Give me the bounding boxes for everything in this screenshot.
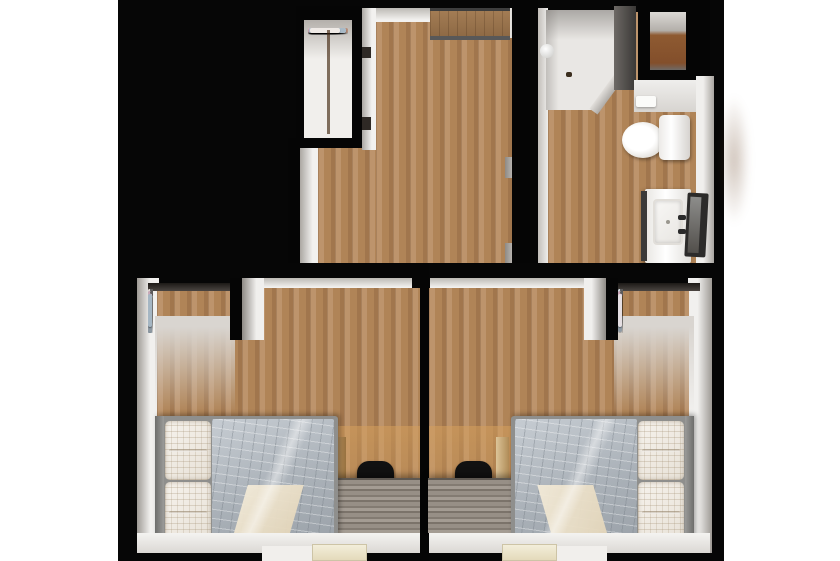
bedroom-right-hanging-clothes xyxy=(618,289,700,333)
shower-wall-right xyxy=(614,6,636,90)
doorway-threshold xyxy=(262,546,312,561)
top-room-wall-top xyxy=(376,8,430,22)
closet-alcove-recess xyxy=(606,278,618,340)
pillow xyxy=(165,421,211,480)
closet-alcove-recess xyxy=(230,278,242,340)
toilet-tank xyxy=(659,115,690,160)
top-room-floor xyxy=(376,20,512,263)
headboard xyxy=(155,416,164,549)
desk xyxy=(428,478,516,533)
closet-rod xyxy=(327,30,330,134)
bedroom-left-door xyxy=(312,544,367,561)
sliding-door-recess xyxy=(430,8,510,40)
toilet-bowl xyxy=(622,122,664,158)
side-shelf xyxy=(496,437,509,479)
doorway-threshold xyxy=(557,546,607,561)
cream-throw xyxy=(232,485,303,539)
closet-alcove-jamb xyxy=(584,278,606,340)
single-bed xyxy=(155,416,338,549)
shower-control-icon xyxy=(540,44,554,58)
garment xyxy=(148,294,152,327)
storage-niche-floor xyxy=(650,12,686,70)
gray-quilt xyxy=(212,419,334,546)
bath-mat xyxy=(636,96,656,107)
garment xyxy=(618,294,622,327)
door-hinge-mark xyxy=(362,47,371,58)
top-room-wall-left-lower xyxy=(300,148,318,263)
right-edge-shadow xyxy=(712,70,756,250)
cream-throw xyxy=(537,485,608,539)
bedroom-right-door xyxy=(502,544,557,561)
shower-drain xyxy=(566,72,572,77)
single-bed xyxy=(511,416,694,549)
bathroom-open-door xyxy=(684,192,708,257)
headboard xyxy=(685,416,694,549)
door-hinge-mark xyxy=(362,117,371,130)
wall-room-bathroom xyxy=(512,0,538,263)
sink-drain xyxy=(666,220,670,224)
closet-alcove-jamb xyxy=(242,278,264,340)
top-room-floor-extension xyxy=(318,148,376,263)
vanity-side-panel xyxy=(641,191,647,261)
floorplan-render xyxy=(0,0,840,561)
desk xyxy=(333,478,421,533)
pillow xyxy=(638,421,684,480)
outer-wall-left xyxy=(288,148,300,263)
gray-quilt xyxy=(515,419,637,546)
faucet-handle xyxy=(678,215,686,220)
garment xyxy=(310,28,340,33)
bedroom-left-hanging-clothes xyxy=(148,289,230,333)
